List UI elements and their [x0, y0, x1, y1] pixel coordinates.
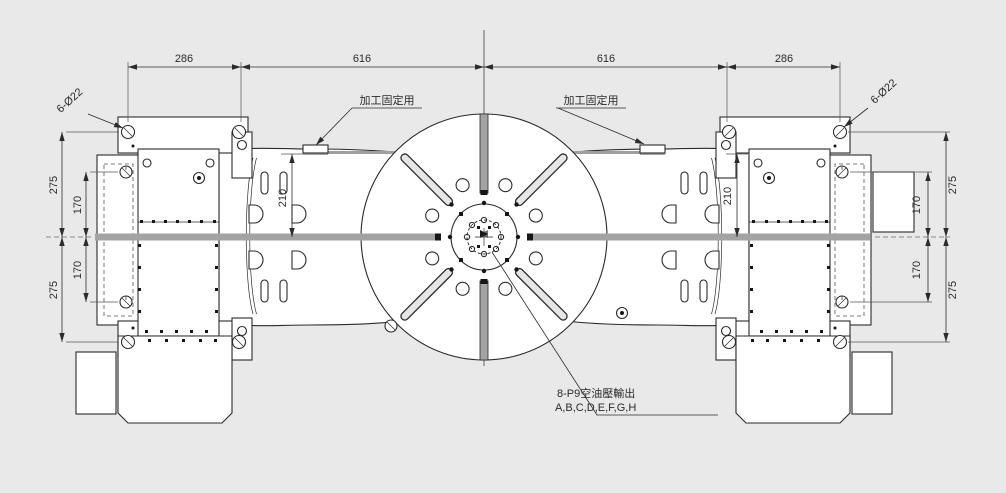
dim-286-left: 286: [175, 53, 193, 65]
dim-170-right-bottom: 170: [911, 261, 923, 279]
fixture-right-text: 加工固定用: [564, 93, 619, 107]
fixture-left-text: 加工固定用: [360, 93, 415, 107]
dim-275-left-bottom: 275: [48, 281, 60, 299]
dim-616-right: 616: [597, 53, 615, 65]
dim-210-right: 210: [722, 187, 734, 205]
ports-text-line1: 8-P9空油壓輸出: [557, 386, 635, 400]
dim-275-right-top: 275: [947, 176, 959, 194]
dim-210-left: 210: [277, 189, 289, 207]
label-fixture-right: 加工固定用: [556, 93, 644, 144]
table-key-hole: [385, 320, 397, 332]
label-bolt-left: 6-Ø22: [55, 86, 123, 128]
technical-drawing: 286 616 616 286 275 170 170 275 275 170 …: [0, 0, 1006, 493]
right-assembly-unit: [566, 117, 892, 423]
bolt-right-text: 6-Ø22: [869, 77, 900, 106]
dim-616-left: 616: [353, 53, 371, 65]
horizontal-slot-left: [95, 234, 440, 241]
label-fixture-left: 加工固定用: [316, 93, 422, 145]
dim-170-left-top: 170: [72, 196, 84, 214]
left-assembly-unit: [76, 117, 402, 423]
horizontal-slot-right: [528, 234, 870, 241]
dim-170-left-bottom: 170: [72, 261, 84, 279]
ports-text-line2: A,B,C,D,E,F,G,H: [555, 402, 636, 414]
dim-275-right-bottom: 275: [947, 281, 959, 299]
dim-170-right-top: 170: [911, 196, 923, 214]
bolt-left-text: 6-Ø22: [55, 86, 86, 115]
dim-286-right: 286: [775, 53, 793, 65]
dim-275-left-top: 275: [48, 176, 60, 194]
label-bolt-right: 6-Ø22: [844, 77, 899, 127]
right-side-block: [873, 172, 914, 232]
drawing-canvas: 286 616 616 286 275 170 170 275 275 170 …: [0, 0, 1006, 493]
